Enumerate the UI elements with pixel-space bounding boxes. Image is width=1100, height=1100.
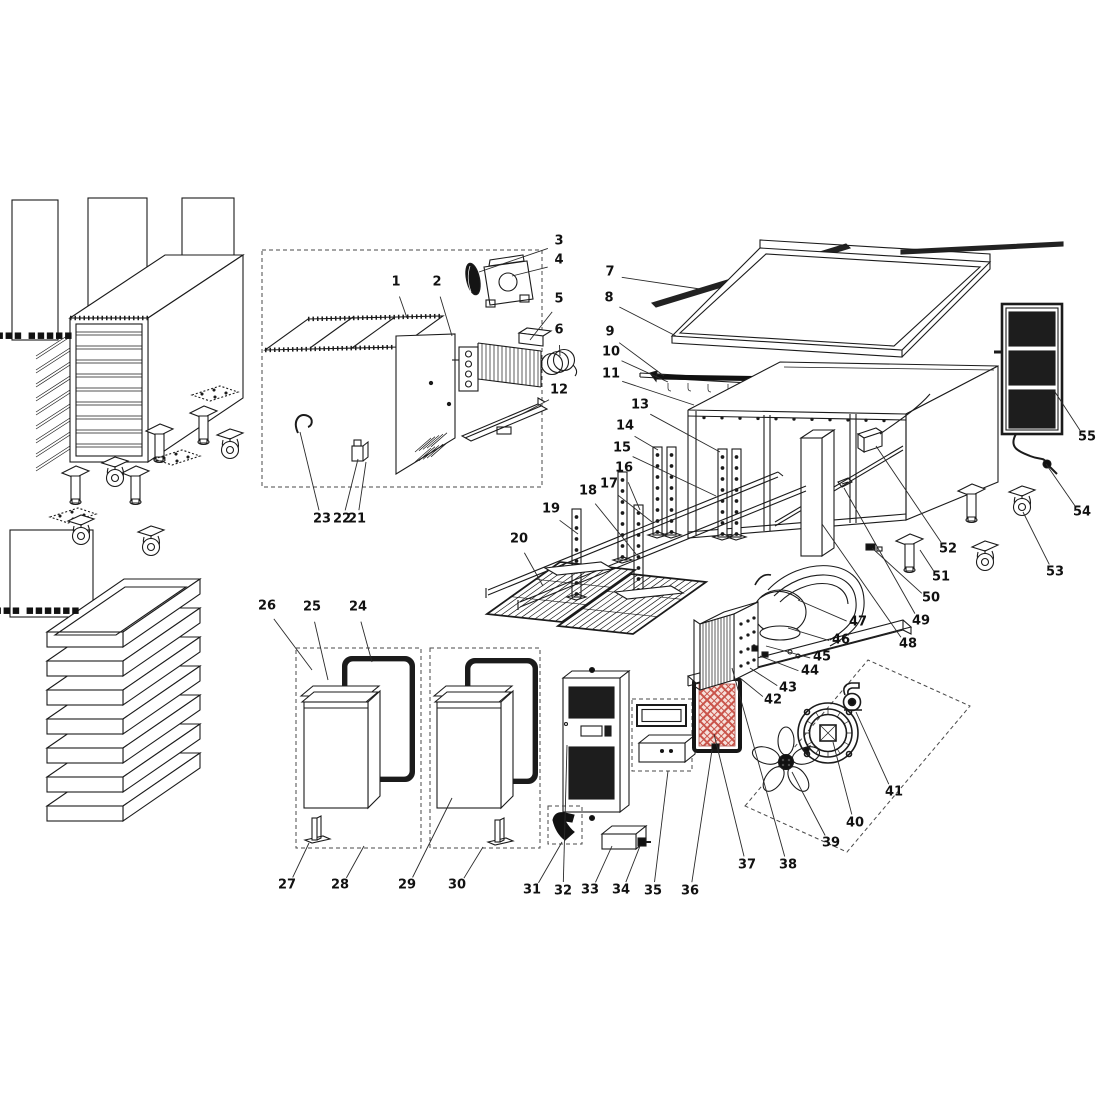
leader-line-28 [346,846,364,878]
part-number-44: 44 [801,664,819,679]
leader-line-42 [740,678,763,697]
leader-line-27 [293,843,309,877]
part-number-11: 11 [602,367,620,382]
controller-box [639,735,695,762]
leader-line-34 [626,846,640,882]
part-number-50: 50 [922,591,940,606]
part-number-52: 52 [939,542,957,557]
leader-line-54 [1046,464,1075,505]
casters-tray-area [68,515,164,556]
part-number-13: 13 [631,398,649,413]
part-number-28: 28 [331,878,349,893]
part-number-23: 23 [313,512,331,527]
part-number-24: 24 [349,600,367,615]
part-number-15: 15 [613,441,631,456]
part-number-51: 51 [932,570,950,585]
leader-line-8 [619,307,676,336]
leader-line-51 [920,550,933,571]
part-number-19: 19 [542,502,560,517]
leader-line-23 [300,432,319,510]
leader-line-14 [635,436,658,450]
part-number-22: 22 [333,512,351,527]
part-number-53: 53 [1046,565,1064,580]
part-number-5: 5 [554,292,563,307]
part-number-8: 8 [604,291,613,306]
center-divider-panel [801,430,834,556]
leader-line-6 [559,345,560,356]
compressor [754,590,806,640]
fan-motor [844,683,863,711]
exploded-parts-diagram: 1234567891011121314151617181920212223242… [0,0,1100,1100]
condenser-coil-block [694,602,758,690]
condenser-fan-blade [750,727,822,795]
leader-line-22 [345,459,358,510]
part-number-25: 25 [303,600,321,615]
fan-mount-bracket [484,255,533,307]
part-number-10: 10 [602,345,620,360]
drain-channel [462,398,547,441]
part-number-49: 49 [912,614,930,629]
part-number-55: 55 [1078,430,1096,445]
part-number-4: 4 [554,253,563,268]
part-number-38: 38 [779,858,797,873]
part-number-39: 39 [822,836,840,851]
junction-box [602,826,651,849]
part-number-54: 54 [1073,505,1091,520]
part-number-35: 35 [644,884,662,899]
part-number-20: 20 [510,532,528,547]
fine-print-2: ▪▪▪▪▪▪▪▪ ▪▪▪▪▪▪ [0,603,80,618]
condenser-tube-coil [542,350,577,377]
worktop [672,240,990,357]
part-number-26: 26 [258,599,276,614]
part-number-16: 16 [615,461,633,476]
leader-line-33 [595,846,612,882]
part-number-34: 34 [612,883,630,898]
part-number-41: 41 [885,785,903,800]
part-number-18: 18 [579,484,597,499]
part-number-36: 36 [681,884,699,899]
leader-line-21 [359,462,366,510]
fan-guard-motor [798,703,858,763]
display-bezel [637,705,686,726]
part-number-3: 3 [554,234,563,249]
part-number-47: 47 [849,615,867,630]
part-number-46: 46 [832,633,850,648]
part-number-29: 29 [398,878,416,893]
part-number-31: 31 [523,883,541,898]
part-number-14: 14 [616,419,634,434]
small-clips [352,440,368,461]
fan-blade-small [463,262,482,296]
part-number-9: 9 [605,325,614,340]
casters-right [972,486,1035,571]
leader-line-30 [464,847,483,878]
leader-line-24 [361,622,372,662]
leader-line-29 [413,798,452,877]
part-number-43: 43 [779,681,797,696]
door-2 [434,686,513,808]
condensing-unit [688,566,911,690]
part-number-12: 12 [550,383,568,398]
part-number-32: 32 [554,884,572,899]
leader-line-53 [1023,512,1049,564]
part-number-27: 27 [278,878,296,893]
door-1 [301,686,380,808]
door-hinge-1 [305,816,330,843]
power-cord [1013,434,1057,474]
leader-line-13 [650,414,720,452]
part-number-33: 33 [581,883,599,898]
leader-line-7 [622,277,700,289]
part-number-40: 40 [846,816,864,831]
drain-hose-hook [296,415,312,433]
part-number-17: 17 [600,477,618,492]
part-number-1: 1 [391,275,400,290]
louvered-panel [563,668,629,821]
leader-line-10 [622,361,668,382]
evaporator-cover-panel [396,334,455,474]
leader-line-18 [595,504,636,554]
evaporator-coil [452,328,551,391]
cabinet-liner-box [36,255,243,471]
door-hinge-2 [488,818,513,845]
part-number-48: 48 [899,637,917,652]
leader-line-31 [538,842,562,883]
leader-line-43 [750,668,777,686]
leader-line-26 [274,619,312,670]
part-number-30: 30 [448,878,466,893]
mounting-bracket-black [553,813,574,840]
part-number-7: 7 [605,265,614,280]
part-number-6: 6 [554,323,563,338]
part-number-2: 2 [432,275,441,290]
fine-print-1: ▪▪▪▪▪▪▪ ▪▪▪▪▪ [0,328,73,343]
rear-grille-panel [994,304,1062,434]
leader-line-35 [655,771,668,882]
leader-line-41 [856,712,889,784]
diagram-canvas: 1234567891011121314151617181920212223242… [0,0,1100,1100]
part-number-37: 37 [738,858,756,873]
leader-line-9 [619,343,664,376]
leader-line-25 [315,622,328,680]
part-number-45: 45 [813,650,831,665]
leader-line-36 [692,750,712,882]
